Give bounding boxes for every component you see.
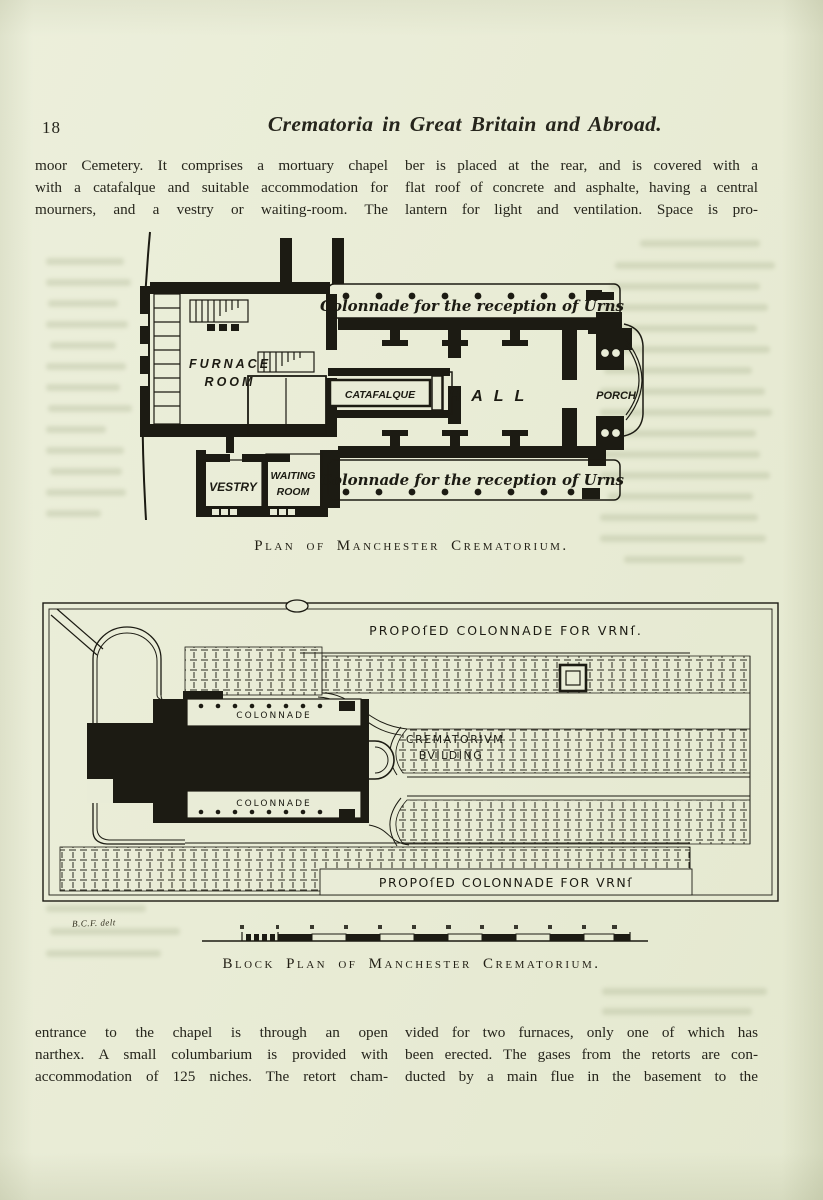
block-plan-caption: Block Plan of Manchester Crematorium. <box>0 956 823 973</box>
plan-caption: Plan of Manchester Crematorium. <box>0 538 823 555</box>
building-colonnade-bottom-label: COLONNADE <box>236 799 311 809</box>
top-left-column: moor Cemetery. It comprises a mortuary c… <box>35 155 388 221</box>
porch-label: PORCH <box>596 390 637 402</box>
body-line: been erected. The gases from the retorts… <box>405 1044 758 1066</box>
body-line: narthex. A small columbarium is provided… <box>35 1044 388 1066</box>
body-line: mourners, and a vestry or waiting-room. … <box>35 199 388 221</box>
body-line: ducted by a main flue in the basement to… <box>405 1066 758 1088</box>
waiting-room-label-2: ROOM <box>277 486 310 498</box>
bottom-right-column: vided for two furnaces, only one of whic… <box>405 1022 758 1088</box>
plan-of-manchester-crematorium-figure: Colonnade for the reception of Urns Colo… <box>130 228 700 533</box>
bottom-left-column: entrance to the chapel is through an ope… <box>35 1022 388 1088</box>
building-colonnade-top-label: COLONNADE <box>236 711 311 721</box>
body-line: with a catafalque and suitable accommoda… <box>35 177 388 199</box>
colonnade-bottom-label: Colonnade for the reception of Urns <box>320 471 625 489</box>
gate-oval <box>286 600 308 612</box>
furnace-room-label-2: ROOM <box>205 375 256 389</box>
scale-bar-segments <box>246 934 630 941</box>
block-plan-figure: PROPOſED COLONNADE FOR VRNſ. COLONNADE C… <box>35 595 785 910</box>
body-line: vided for two furnaces, only one of whic… <box>405 1022 758 1044</box>
page-number: 18 <box>42 118 61 138</box>
draughtsman-signature: B.C.F. delt <box>72 917 116 929</box>
catafalque-label: CATAFALQUE <box>345 389 416 401</box>
scale-bar <box>190 922 660 950</box>
furnace-room-label-1: FURNACE <box>189 357 271 371</box>
top-right-column: ber is placed at the rear, and is covere… <box>405 155 758 221</box>
book-page: 18 Crematoria in Great Britain and Abroa… <box>0 0 823 1200</box>
body-line: entrance to the chapel is through an ope… <box>35 1022 388 1044</box>
body-line: flat roof of concrete and asphalte, havi… <box>405 177 758 199</box>
vestry-label: VESTRY <box>209 480 258 494</box>
bottom-band-label: PROPOſED COLONNADE FOR VRNſ <box>379 875 633 890</box>
body-line: moor Cemetery. It comprises a mortuary c… <box>35 155 388 177</box>
colonnade-top-label: Colonnade for the reception of Urns <box>320 297 625 315</box>
hall-label: HALL <box>449 388 536 405</box>
monument-square <box>560 665 586 691</box>
page-title: Crematoria in Great Britain and Abroad. <box>150 112 780 137</box>
body-line: accommodation of 125 niches. The retort … <box>35 1066 388 1088</box>
waiting-room-label-1: WAITING <box>271 470 316 482</box>
body-line: lantern for light and ventilation. Space… <box>405 199 758 221</box>
body-line: ber is placed at the rear, and is covere… <box>405 155 758 177</box>
top-band-label: PROPOſED COLONNADE FOR VRNſ. <box>369 623 643 638</box>
building-label-1: CREMATORIVM <box>406 733 504 746</box>
scale-tick-marks <box>240 925 617 929</box>
building-label-2: BVILDING <box>419 749 484 762</box>
